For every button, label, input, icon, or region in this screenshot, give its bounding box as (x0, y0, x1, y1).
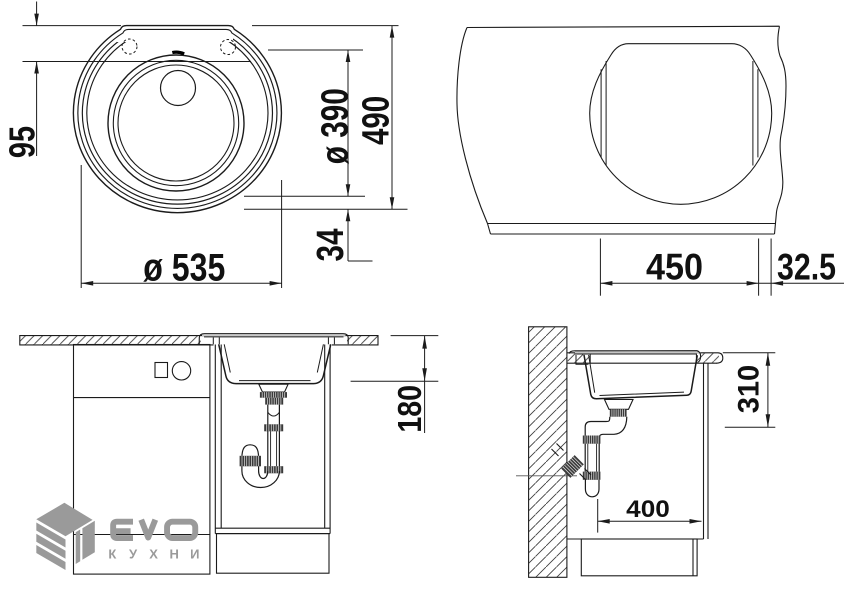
svg-text:400: 400 (626, 496, 670, 523)
svg-text:ø 390: ø 390 (315, 88, 357, 164)
svg-text:310: 310 (733, 365, 766, 413)
svg-text:У: У (129, 546, 138, 561)
svg-text:95: 95 (2, 126, 43, 158)
svg-text:Н: Н (170, 546, 179, 561)
svg-text:450: 450 (646, 246, 703, 287)
svg-text:И: И (190, 546, 199, 561)
svg-text:180: 180 (391, 385, 428, 433)
svg-text:490: 490 (355, 96, 397, 145)
svg-text:32.5: 32.5 (777, 246, 836, 287)
svg-text:34: 34 (310, 229, 352, 262)
svg-text:Х: Х (149, 546, 158, 561)
svg-text:К: К (108, 546, 116, 561)
svg-text:ø 535: ø 535 (143, 247, 225, 290)
